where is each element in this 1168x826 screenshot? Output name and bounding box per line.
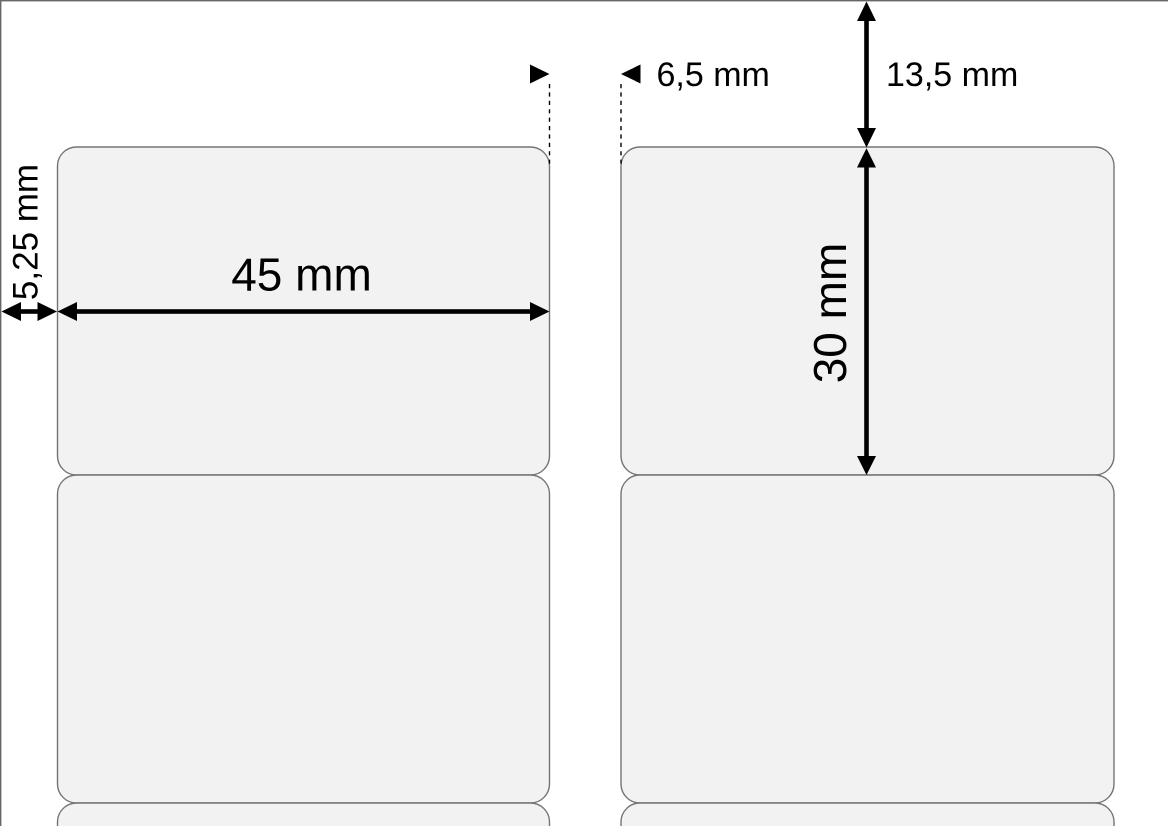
svg-text:5,25 mm: 5,25 mm: [7, 164, 46, 300]
svg-text:30 mm: 30 mm: [804, 243, 856, 384]
svg-text:6,5 mm: 6,5 mm: [657, 56, 770, 94]
svg-text:45 mm: 45 mm: [231, 249, 372, 301]
svg-text:13,5 mm: 13,5 mm: [886, 56, 1018, 94]
